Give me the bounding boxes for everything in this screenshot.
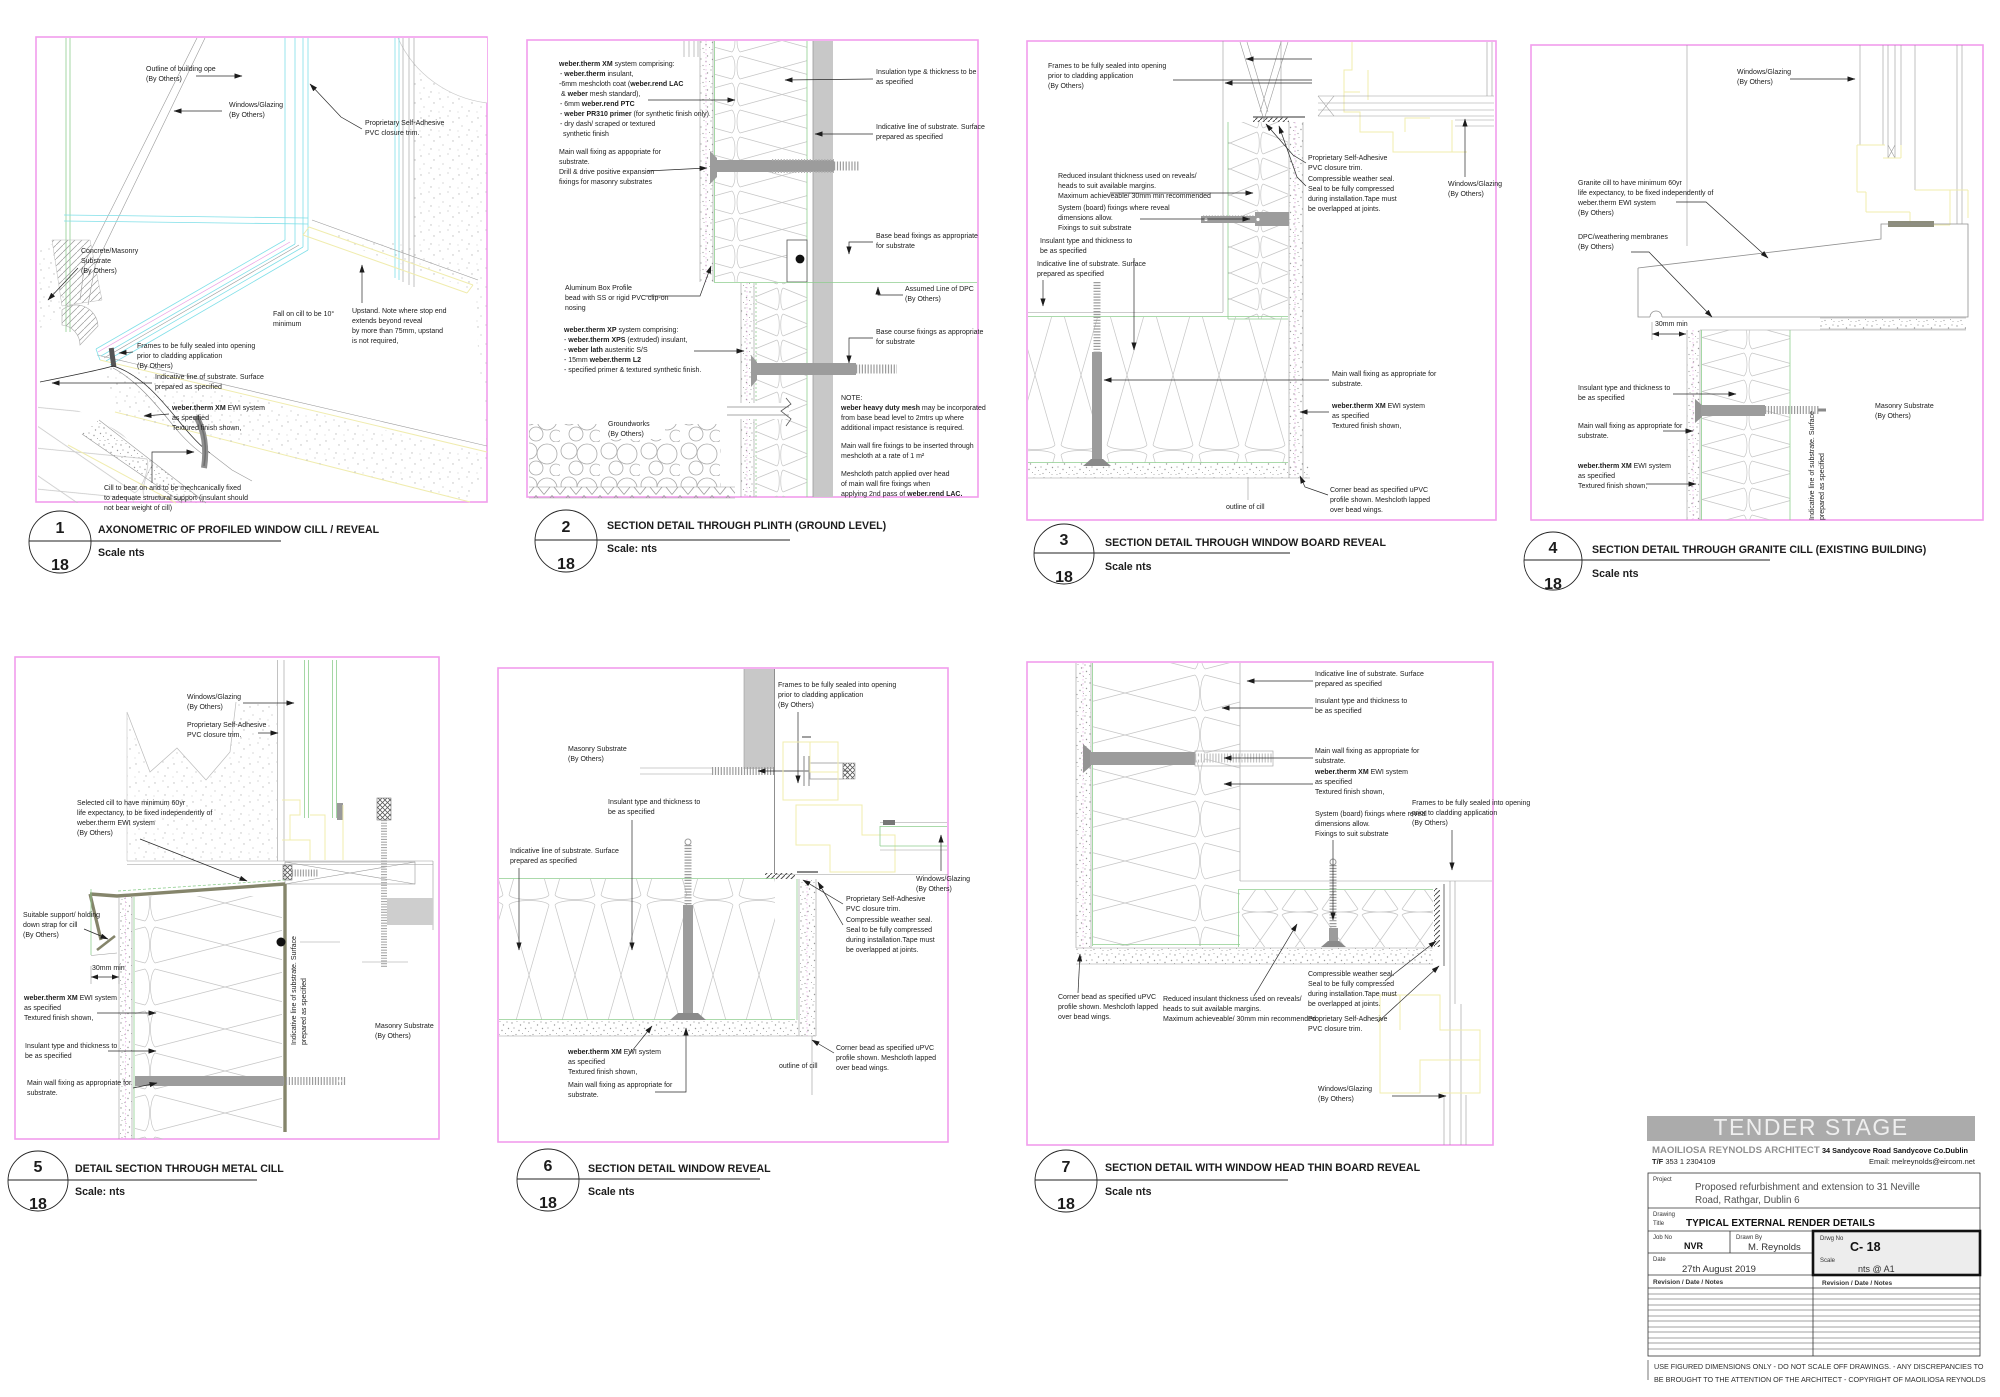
svg-text:substrate.: substrate. [1578,433,1609,440]
svg-text:as specified: as specified [172,415,209,422]
svg-text:prepared as specified: prepared as specified [876,134,943,141]
svg-text:weber.therm XM EWI system: weber.therm XM EWI system [23,995,117,1002]
svg-text:outline of cill: outline of cill [1226,504,1265,511]
svg-text:weber.therm XM EWI system: weber.therm XM EWI system [567,1049,661,1056]
svg-text:Drwg No: Drwg No [1820,1236,1844,1242]
svg-text:Textured finish shown,: Textured finish shown, [1332,423,1401,430]
svg-text:(By Others): (By Others) [568,756,604,763]
svg-text:18: 18 [29,1196,47,1213]
svg-text:Indicative line of substrate.: Indicative line of substrate. Surface [1809,411,1816,520]
svg-text:fixings for masonry substrates: fixings for masonry substrates [559,179,652,186]
svg-text:(By Others): (By Others) [608,431,644,438]
svg-text:by more than 75mm, upstand: by more than 75mm, upstand [352,328,443,335]
svg-text:18: 18 [539,1195,557,1212]
svg-text:PVC closure trim.: PVC closure trim. [1308,165,1363,172]
svg-text:(By Others): (By Others) [187,704,223,711]
svg-text:substrate.: substrate. [568,1092,599,1099]
svg-text:- specified primer & textured: - specified primer & textured synthetic … [564,367,701,374]
svg-text:as specified: as specified [1332,413,1369,420]
svg-text:Base course fixings as appropr: Base course fixings as appropriate [876,329,983,336]
svg-text:Proprietary Self-Adhesive: Proprietary Self-Adhesive [187,722,266,729]
svg-text:PVC closure trim.: PVC closure trim. [846,906,901,913]
svg-text:Selected cill to have minimum: Selected cill to have minimum 60yr [77,800,186,807]
svg-text:(By Others): (By Others) [77,830,113,837]
svg-text:Scale: Scale [1820,1258,1836,1264]
svg-text:3: 3 [1060,532,1069,549]
svg-text:be as specified: be as specified [1315,708,1362,715]
svg-text:Granite cill to have minimum: Granite cill to have minimum 60yr [1578,180,1683,187]
svg-text:substrate.: substrate. [559,159,590,166]
svg-text:Groundworks: Groundworks [608,421,650,428]
svg-text:(By Others): (By Others) [1318,1096,1354,1103]
svg-text:(By Others): (By Others) [916,886,952,893]
svg-text:meshcloth at a rate of 1 m²: meshcloth at a rate of 1 m² [841,453,925,460]
svg-text:- 15mm weber.therm L2: - 15mm weber.therm L2 [564,357,641,364]
svg-text:- 6mm weber.rend PTC: - 6mm weber.rend PTC [560,101,635,108]
svg-text:SECTION DETAIL THROUGH GRANITE: SECTION DETAIL THROUGH GRANITE CILL (EXI… [1592,544,1926,556]
svg-text:as specified: as specified [876,79,913,86]
svg-text:- dry dash/ scraped or texture: - dry dash/ scraped or textured [560,121,655,128]
svg-text:over bead wings.: over bead wings. [836,1065,889,1072]
svg-text:weber.therm XM EWI system: weber.therm XM EWI system [1577,463,1671,470]
svg-text:heads to suit available margin: heads to suit available margins. [1163,1006,1261,1013]
svg-text:Compressible weather seal.: Compressible weather seal. [1308,971,1394,978]
svg-text:& weber mesh standard),: & weber mesh standard), [561,91,640,98]
svg-text:substrate.: substrate. [1332,381,1363,388]
svg-text:Textured finish shown,: Textured finish shown, [1315,789,1384,796]
svg-text:is not required,: is not required, [352,338,398,345]
svg-text:Insulant type and thickness to: Insulant type and thickness to [1315,698,1407,705]
svg-text:weber.therm EWI system: weber.therm EWI system [1577,200,1656,207]
svg-text:Main wall fixing as appropriat: Main wall fixing as appropriate for [1332,371,1437,378]
svg-text:not bear weight of cill): not bear weight of cill) [104,505,172,512]
svg-text:Proprietary Self-Adhesive: Proprietary Self-Adhesive [1308,155,1387,162]
svg-text:TENDER STAGE: TENDER STAGE [1713,1114,1908,1140]
svg-text:Outline of building ope: Outline of building ope [146,66,216,73]
svg-text:Main wall fixing as appropriat: Main wall fixing as appropriate for [1315,748,1420,755]
svg-text:prior to cladding application: prior to cladding application [778,692,863,699]
svg-text:Seal to be fully compressed: Seal to be fully compressed [1308,981,1394,988]
svg-text:Windows/Glazing: Windows/Glazing [1318,1086,1372,1093]
svg-text:during installation.Tape must: during installation.Tape must [1308,196,1397,203]
svg-text:(By Others): (By Others) [778,702,814,709]
svg-text:18: 18 [557,556,575,573]
svg-text:(By Others): (By Others) [1737,79,1773,86]
svg-text:SECTION DETAIL WINDOW REVEAL: SECTION DETAIL WINDOW REVEAL [588,1163,771,1175]
svg-text:Insulant type and thickness to: Insulant type and thickness to [1040,238,1132,245]
svg-text:Main wall fixing as appropriat: Main wall fixing as appropriate for [27,1080,132,1087]
svg-text:Insulant type and thickness to: Insulant type and thickness to [1578,385,1670,392]
svg-text:C- 18: C- 18 [1850,1240,1881,1254]
svg-text:over bead wings.: over bead wings. [1058,1014,1111,1021]
svg-text:Maximum achieveable/ 30mm min: Maximum achieveable/ 30mm min recommende… [1058,193,1211,200]
svg-text:weber.therm XP system compris: weber.therm XP system comprising: [563,327,678,334]
svg-text:30mm min: 30mm min [92,965,125,972]
svg-text:Drawn By: Drawn By [1736,1235,1762,1241]
svg-text:Frames to be fully sealed into: Frames to be fully sealed into opening [778,682,896,689]
svg-text:Indicative line of substrate.: Indicative line of substrate. Surface [1037,261,1146,268]
svg-text:SECTION DETAIL THROUGH PLINTH: SECTION DETAIL THROUGH PLINTH (GROUND LE… [607,520,886,532]
svg-text:dimensions allow.: dimensions allow. [1058,215,1113,222]
svg-text:Indicative line of substrate.: Indicative line of substrate. Surface [876,124,985,131]
svg-text:(By Others): (By Others) [1048,83,1084,90]
svg-text:nts @ A1: nts @ A1 [1858,1264,1895,1274]
svg-text:PVC closure trim.: PVC closure trim. [1308,1026,1363,1033]
svg-text:prepared as specified: prepared as specified [1037,271,1104,278]
svg-text:Masonry Substrate: Masonry Substrate [1875,403,1934,410]
svg-text:Windows/Glazing: Windows/Glazing [187,694,241,701]
svg-text:Frames to be fully sealed into: Frames to be fully sealed into opening [1048,63,1166,70]
svg-text:Project: Project [1653,1177,1672,1183]
svg-text:substrate.: substrate. [1315,758,1346,765]
svg-text:Scale nts: Scale nts [588,1186,635,1198]
svg-text:Drill & drive positive expansi: Drill & drive positive expansion [559,169,654,176]
svg-text:- weber.therm XPS (extruded) i: - weber.therm XPS (extruded) insulant, [564,337,687,344]
svg-text:applying 2nd pass of weber.ren: applying 2nd pass of weber.rend LAC. [841,491,962,498]
svg-text:Indicative line of substrate.: Indicative line of substrate. Surface [1315,671,1424,678]
svg-text:Proprietary Self-Adhesive: Proprietary Self-Adhesive [846,896,925,903]
svg-text:DPC/weathering membranes: DPC/weathering membranes [1578,234,1668,241]
svg-text:Compressible weather seal.: Compressible weather seal. [846,917,932,924]
svg-text:6: 6 [544,1158,553,1175]
svg-text:Masonry Substrate: Masonry Substrate [568,746,627,753]
svg-text:for substrate: for substrate [876,339,915,346]
svg-text:heads to suit available margin: heads to suit available margins. [1058,183,1156,190]
svg-text:Date: Date [1653,1257,1666,1263]
svg-text:(By Others): (By Others) [137,363,173,370]
svg-text:profile shown. Meshcloth lappe: profile shown. Meshcloth lapped [836,1055,936,1062]
svg-text:Fall on cill to be 10°: Fall on cill to be 10° [273,310,334,318]
svg-text:as specified: as specified [1315,779,1352,786]
svg-text:System (board) fixings where r: System (board) fixings where reveal [1315,811,1427,818]
svg-text:as specified: as specified [1578,473,1615,480]
svg-text:prepared as specified: prepared as specified [1315,681,1382,688]
svg-text:Upstand. Note where stop end: Upstand. Note where stop end [352,308,447,315]
svg-text:- weber PR310 primer (for synt: - weber PR310 primer (for synthetic fini… [560,111,709,118]
svg-text:of main wall fire fixings when: of main wall fire fixings when [841,481,930,488]
svg-text:be as specified: be as specified [608,809,655,816]
svg-text:(By Others): (By Others) [1448,191,1484,198]
svg-text:Scale nts: Scale nts [1592,568,1639,580]
svg-text:Fixings to suit substrate: Fixings to suit substrate [1058,225,1132,232]
svg-text:(By Others): (By Others) [146,76,182,83]
svg-text:Proposed refurbishment and ext: Proposed refurbishment and extension to … [1695,1182,1920,1193]
svg-text:weber heavy duty mesh may be i: weber heavy duty mesh may be incorporate… [840,405,986,412]
svg-text:-6mm meshcloth coat (weber.ren: -6mm meshcloth coat (weber.rend LAC [559,81,683,88]
svg-text:Compressible weather seal.: Compressible weather seal. [1308,176,1394,183]
svg-text:Textured finish shown,: Textured finish shown, [568,1069,637,1076]
svg-text:prepared as specified: prepared as specified [510,858,577,865]
svg-text:Windows/Glazing: Windows/Glazing [916,876,970,883]
svg-text:- weber lath austenitic S/S: - weber lath austenitic S/S [564,347,648,354]
svg-text:prior to cladding application: prior to cladding application [1048,73,1133,80]
svg-text:27th August 2019: 27th August 2019 [1682,1264,1756,1275]
svg-text:18: 18 [51,557,69,574]
svg-text:Insulant type and thickness to: Insulant type and thickness to [608,799,700,806]
svg-text:be as specified: be as specified [25,1053,72,1060]
svg-text:Suitable support/ holding: Suitable support/ holding [23,912,100,919]
svg-text:4: 4 [1549,540,1558,557]
svg-text:prior to cladding application: prior to cladding application [1412,810,1497,817]
svg-text:during installation.Tape must: during installation.Tape must [1308,991,1397,998]
svg-text:Reduced insulant thickness use: Reduced insulant thickness used on revea… [1163,996,1302,1003]
svg-text:profile shown. Meshcloth lappe: profile shown. Meshcloth lapped [1330,497,1430,504]
svg-text:weber.therm EWI system: weber.therm EWI system [76,820,155,827]
svg-text:(By Others): (By Others) [1412,820,1448,827]
svg-text:Aluminum Box Profile: Aluminum Box Profile [565,285,632,292]
svg-text:Windows/Glazing: Windows/Glazing [1737,69,1791,76]
svg-text:18: 18 [1057,1196,1075,1213]
svg-text:(By Others): (By Others) [229,112,265,119]
svg-text:synthetic finish: synthetic finish [563,131,609,138]
svg-text:Assumed Line of DPC: Assumed Line of DPC [905,286,974,293]
svg-text:34 Sandycove Road Sandycove: 34 Sandycove Road Sandycove Co.Dublin [1822,1146,1968,1155]
svg-text:Scale nts: Scale nts [98,547,145,559]
svg-text:Meshcloth patch applied over h: Meshcloth patch applied over head [841,471,950,478]
svg-text:as specified: as specified [568,1059,605,1066]
svg-text:outline of cill: outline of cill [779,1063,818,1070]
svg-text:(By Others): (By Others) [1875,413,1911,420]
svg-text:Insulant type and thickness to: Insulant type and thickness to [25,1043,117,1050]
svg-text:be overlapped at joints.: be overlapped at joints. [846,947,918,954]
svg-text:life expectancy, to be fixed i: life expectancy, to be fixed independent… [77,810,212,817]
svg-text:NOTE:: NOTE: [841,395,862,402]
svg-text:Textured finish shown,: Textured finish shown, [172,425,241,432]
svg-text:Indicative line of substrate.: Indicative line of substrate. Surface [510,848,619,855]
svg-text:Reduced insulant thickness use: Reduced insulant thickness used on revea… [1058,173,1197,180]
svg-text:USE FIGURED DIMENSIONS ONLY -: USE FIGURED DIMENSIONS ONLY - DO NOT SCA… [1654,1362,1984,1371]
svg-text:30mm min: 30mm min [1655,321,1688,328]
svg-text:weber.therm XM EWI system: weber.therm XM EWI system [1314,769,1408,776]
svg-text:for substrate: for substrate [876,243,915,250]
svg-text:prior to cladding application: prior to cladding application [137,353,222,360]
svg-text:minimum: minimum [273,321,302,328]
svg-text:Scale nts: Scale nts [1105,561,1152,573]
svg-text:- weber.therm insulant,: - weber.therm insulant, [560,71,634,78]
svg-text:Corner bead as specified uPVC: Corner bead as specified uPVC [1330,487,1428,494]
svg-text:BE BROUGHT TO THE ATTENTION OF: BE BROUGHT TO THE ATTENTION OF THE ARCHI… [1654,1375,1986,1384]
svg-text:Windows/Glazing: Windows/Glazing [1448,181,1502,188]
svg-text:substrate.: substrate. [27,1090,58,1097]
svg-text:(By Others): (By Others) [1578,244,1614,251]
svg-text:life expectancy, to be fixed i: life expectancy, to be fixed independent… [1578,190,1713,197]
svg-text:Insulation type & thickness to: Insulation type & thickness to be [876,69,976,76]
svg-text:System (board) fixings where r: System (board) fixings where reveal [1058,205,1170,212]
svg-text:from base bead level to 2mtrs: from base bead level to 2mtrs up where [841,415,964,422]
svg-text:Scale: nts: Scale: nts [607,543,657,555]
svg-text:Title: Title [1653,1221,1665,1227]
svg-text:1: 1 [56,520,65,537]
svg-text:Main wall fixing as appopriate: Main wall fixing as appopriate for [559,149,662,156]
svg-text:Scale nts: Scale nts [1105,1186,1152,1198]
svg-text:Revision / Date / Notes: Revision / Date / Notes [1653,1279,1723,1286]
svg-text:Concrete/Masonry: Concrete/Masonry [81,248,139,255]
svg-text:Seal to be fully compressed: Seal to be fully compressed [846,927,932,934]
svg-text:Main wall fire fixings to be i: Main wall fire fixings to be inserted th… [841,443,974,450]
svg-text:Job No: Job No [1653,1235,1673,1241]
svg-text:Frames to be fully sealed into: Frames to be fully sealed into opening [1412,800,1530,807]
svg-text:Revision / Date / Notes: Revision / Date / Notes [1822,1280,1892,1287]
svg-text:Substrate: Substrate [81,258,111,265]
svg-text:Road, Rathgar, Dublin 6: Road, Rathgar, Dublin 6 [1695,1195,1800,1206]
svg-text:prepared as specified: prepared as specified [155,384,222,391]
svg-text:Proprietary Self-Adhesive: Proprietary Self-Adhesive [1308,1016,1387,1023]
svg-text:18: 18 [1544,576,1562,593]
svg-text:MAOILIOSA REYNOLDS ARCHITECT: MAOILIOSA REYNOLDS ARCHITECT [1652,1145,1820,1156]
svg-text:Drawing: Drawing [1653,1212,1675,1218]
svg-text:be as specified: be as specified [1040,248,1087,255]
svg-text:SECTION DETAIL WITH WINDOW HEA: SECTION DETAIL WITH WINDOW HEAD THIN BOA… [1105,1162,1421,1174]
svg-text:Main wall fixing as appropriat: Main wall fixing as appropriate for [568,1082,673,1089]
svg-text:weber.therm XM system compris: weber.therm XM system comprising: [558,61,675,68]
svg-text:down strap for cill: down strap for cill [23,922,78,929]
svg-text:Indicative line of substrate.: Indicative line of substrate. Surface [291,936,298,1045]
svg-text:NVR: NVR [1684,1241,1704,1251]
svg-text:Corner bead as specified uPVC: Corner bead as specified uPVC [836,1045,934,1052]
svg-text:Fixings to suit substrate: Fixings to suit substrate [1315,831,1389,838]
svg-text:dimensions allow.: dimensions allow. [1315,821,1370,828]
svg-text:Frames to be fully sealed into: Frames to be fully sealed into opening [137,343,255,350]
svg-text:Masonry Substrate: Masonry Substrate [375,1023,434,1030]
svg-text:AXONOMETRIC OF PROFILED WINDOW: AXONOMETRIC OF PROFILED WINDOW CILL / RE… [98,524,380,536]
svg-text:PVC closure trim.: PVC closure trim. [187,732,242,739]
svg-text:prepared as specified: prepared as specified [1819,453,1826,520]
svg-text:18: 18 [1055,569,1073,586]
svg-text:(By Others): (By Others) [23,932,59,939]
svg-text:(By Others): (By Others) [905,296,941,303]
svg-text:TYPICAL EXTERNAL RENDER DETAIL: TYPICAL EXTERNAL RENDER DETAILS [1686,1218,1875,1229]
svg-text:T/F 353 1 2304109: T/F 353 1 2304109 [1652,1157,1715,1166]
svg-text:7: 7 [1062,1159,1071,1176]
svg-text:Windows/Glazing: Windows/Glazing [229,102,283,109]
svg-text:5: 5 [34,1159,43,1176]
svg-text:over bead wings.: over bead wings. [1330,507,1383,514]
svg-text:Indicative line of substrate.: Indicative line of substrate. Surface [155,374,264,381]
svg-text:weber.therm XM EWI system: weber.therm XM EWI system [171,405,265,412]
svg-text:Proprietary Self-Adhesive: Proprietary Self-Adhesive [365,120,444,127]
svg-text:Scale: nts: Scale: nts [75,1186,125,1198]
svg-text:Main wall fixing as appropriat: Main wall fixing as appropriate for [1578,423,1683,430]
svg-text:Corner bead as specified uPVC: Corner bead as specified uPVC [1058,994,1156,1001]
svg-text:nosing: nosing [565,305,586,312]
svg-text:as specified: as specified [24,1005,61,1012]
svg-text:(By Others): (By Others) [375,1033,411,1040]
svg-text:be overlapped at joints.: be overlapped at joints. [1308,206,1380,213]
svg-text:Base bead fixings as appropria: Base bead fixings as appropriate [876,233,978,240]
svg-text:M. Reynolds: M. Reynolds [1748,1242,1801,1253]
svg-text:additional impact resistance i: additional impact resistance is required… [841,425,964,432]
svg-text:Email: melreynolds@eircom.net: Email: melreynolds@eircom.net [1869,1157,1976,1166]
svg-text:Cill to bear on and to be mech: Cill to bear on and to be mechcanically … [104,485,241,492]
svg-text:be as specified: be as specified [1578,395,1625,402]
svg-text:during installation.Tape must: during installation.Tape must [846,937,935,944]
svg-text:to adequate structural support: to adequate structural support (insulant… [104,495,248,502]
svg-text:Textured finish shown,: Textured finish shown, [1578,483,1647,490]
svg-text:Textured finish shown,: Textured finish shown, [24,1015,93,1022]
svg-text:2: 2 [562,519,571,536]
svg-text:PVC closure trim.: PVC closure trim. [365,130,420,137]
svg-text:(By Others): (By Others) [81,268,117,275]
svg-text:Seal to be fully compressed: Seal to be fully compressed [1308,186,1394,193]
svg-text:extends beyond reveal: extends beyond reveal [352,318,423,325]
svg-text:be overlapped at joints.: be overlapped at joints. [1308,1001,1380,1008]
svg-text:(By Others): (By Others) [1578,210,1614,217]
svg-text:prepared as specified: prepared as specified [301,978,308,1045]
svg-text:profile shown. Meshcloth lappe: profile shown. Meshcloth lapped [1058,1004,1158,1011]
svg-text:DETAIL SECTION THROUGH METAL C: DETAIL SECTION THROUGH METAL CILL [75,1163,284,1175]
svg-text:weber.therm XM EWI system: weber.therm XM EWI system [1331,403,1425,410]
svg-text:SECTION DETAIL THROUGH WINDOW: SECTION DETAIL THROUGH WINDOW BOARD REVE… [1105,537,1386,549]
svg-text:Maximum achieveable/ 30mm min: Maximum achieveable/ 30mm min recommende… [1163,1016,1316,1023]
